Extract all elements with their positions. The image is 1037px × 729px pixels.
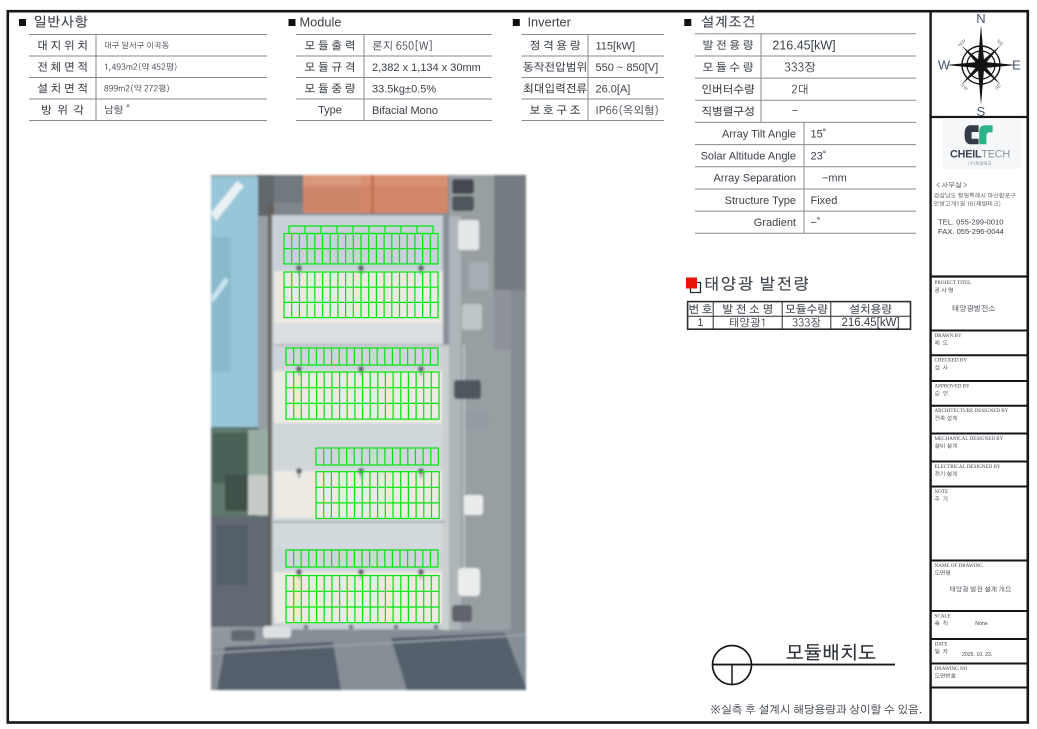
svg-text:−˚: −˚ [811, 217, 821, 229]
svg-text:26.0[A]: 26.0[A] [596, 84, 631, 96]
svg-text:550 ~ 850[V]: 550 ~ 850[V] [596, 62, 659, 74]
svg-text:Inverter: Inverter [528, 14, 572, 29]
svg-text:Structure Type: Structure Type [725, 195, 796, 207]
svg-text:2025. 10. 23.: 2025. 10. 23. [962, 652, 992, 658]
svg-text:E: E [1012, 58, 1021, 73]
svg-text:Module: Module [300, 14, 342, 29]
svg-text:FAX. 055-296-0044: FAX. 055-296-0044 [938, 227, 1004, 236]
svg-text:Fixed: Fixed [811, 195, 838, 207]
svg-text:DATE: DATE [935, 641, 948, 647]
svg-text:Array Separation: Array Separation [713, 173, 796, 185]
svg-text:SCALE: SCALE [935, 613, 951, 619]
svg-text:N: N [976, 11, 985, 26]
svg-text:−: − [792, 105, 798, 117]
svg-text:Type: Type [318, 105, 342, 117]
svg-text:ARCHITECTURE DESIGNED BY: ARCHITECTURE DESIGNED BY [935, 408, 1009, 414]
svg-text:Array Tilt Angle: Array Tilt Angle [722, 128, 796, 140]
svg-text:216.45[kW]: 216.45[kW] [772, 38, 835, 52]
svg-text:23˚: 23˚ [811, 151, 827, 163]
svg-text:MECHANICAL DESIGNED BY: MECHANICAL DESIGNED BY [935, 436, 1004, 442]
svg-text:DRAWN BY: DRAWN BY [935, 333, 963, 339]
svg-text:Bifacial Mono: Bifacial Mono [372, 105, 438, 117]
svg-text:15˚: 15˚ [811, 128, 827, 140]
svg-text:2,382 x 1,134 x 30mm: 2,382 x 1,134 x 30mm [372, 62, 481, 74]
svg-text:−mm: −mm [822, 173, 847, 185]
svg-text:NAME OF DRAWING: NAME OF DRAWING [935, 563, 984, 569]
svg-text:NOTE: NOTE [935, 489, 949, 495]
svg-text:33.5kg±0.5%: 33.5kg±0.5% [372, 84, 436, 96]
svg-text:W: W [938, 58, 951, 73]
svg-text:Solar Altitude Angle: Solar Altitude Angle [701, 150, 796, 162]
svg-text:DRAWING NO: DRAWING NO [935, 666, 968, 672]
svg-text:CHECKED BY: CHECKED BY [935, 358, 968, 364]
svg-text:115[kW]: 115[kW] [596, 41, 636, 53]
svg-text:CHEILTECH: CHEILTECH [950, 149, 1010, 161]
svg-text:APPROVED BY: APPROVED BY [935, 383, 971, 389]
svg-text:216.45[kW]: 216.45[kW] [842, 317, 900, 329]
svg-text:S: S [977, 104, 986, 119]
svg-text:TEL. 055-299-0010: TEL. 055-299-0010 [938, 217, 1003, 226]
svg-text:Gradient: Gradient [754, 217, 796, 229]
svg-text:1: 1 [697, 317, 703, 329]
svg-text:ELECTRICAL DESIGNED BY: ELECTRICAL DESIGNED BY [935, 464, 1001, 470]
svg-text:None: None [975, 621, 988, 627]
svg-text:PROJECT TITEL: PROJECT TITEL [935, 280, 972, 286]
